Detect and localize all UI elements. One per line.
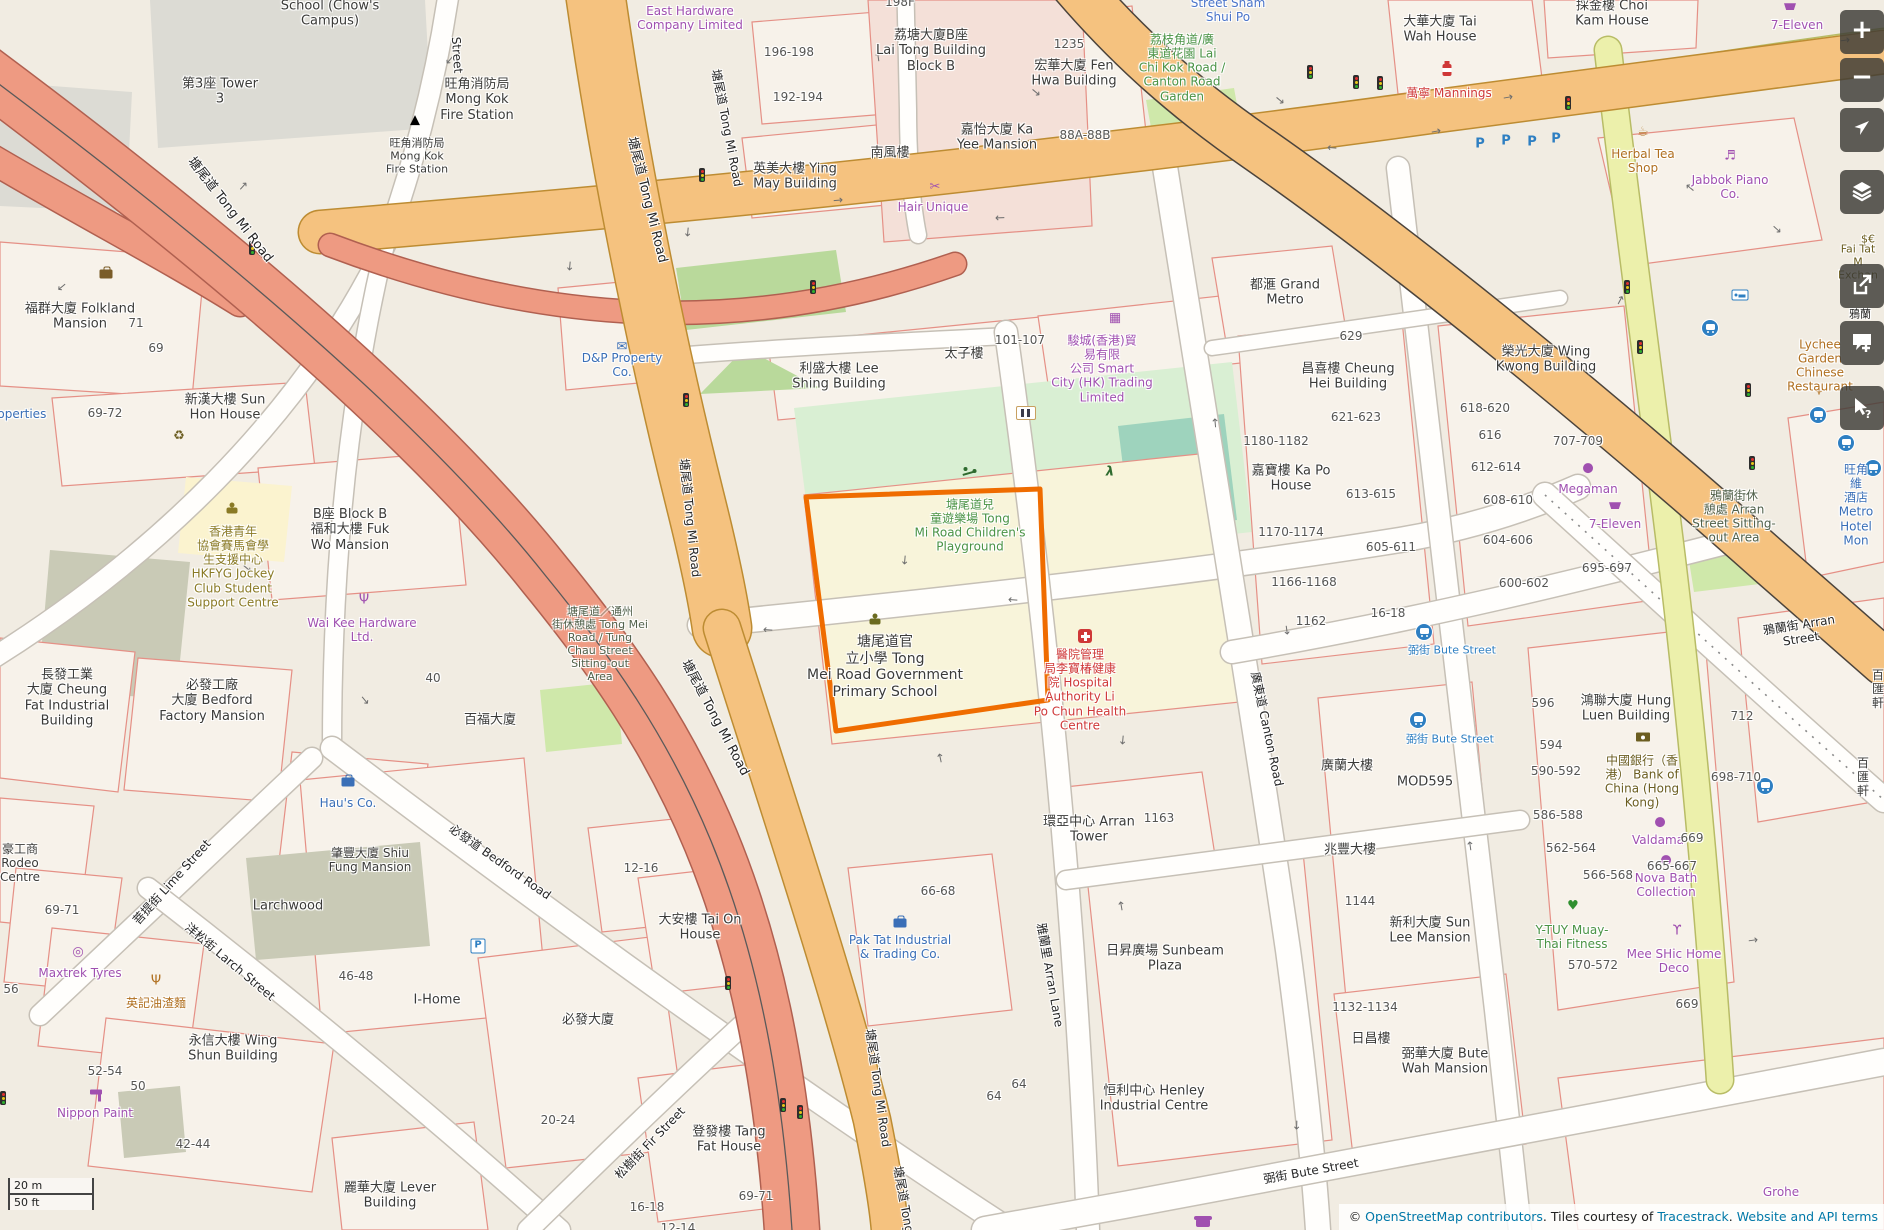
cutlery-icon: Ψ (151, 975, 161, 988)
oneway-arrow-icon: → (1747, 933, 1759, 946)
map-label: 46-48 (339, 969, 374, 983)
map-label: 新利大廈 Sun Lee Mansion (1389, 916, 1470, 947)
map-label: 669 (1676, 997, 1699, 1011)
map-label: 昌喜樓 Cheung Hei Building (1301, 362, 1394, 393)
basket-icon (1609, 501, 1621, 509)
svg-text:?: ? (1865, 408, 1871, 420)
map-label: 旺角維 酒店 Metro Hotel Mon (1839, 463, 1873, 548)
sofa-icon (1196, 1219, 1210, 1227)
map-label: 塘尾道兒 童遊樂場 Tong Mi Road Children's Playgr… (915, 498, 1026, 555)
map-label: 52-54 (88, 1064, 123, 1078)
map-label: B座 Block B 福和大樓 Fuk Wo Mansion (311, 507, 390, 553)
map-label: 621-623 (1331, 410, 1381, 424)
tl-icon (1377, 76, 1383, 90)
osm-contributors-link[interactable]: OpenStreetMap contributors (1365, 1209, 1543, 1224)
map-label: 64 (986, 1089, 1001, 1103)
tl-icon (0, 1091, 6, 1105)
street-label: 鴉蘭 (1849, 309, 1871, 322)
map-label: 日昌樓 (1351, 1031, 1390, 1046)
map-label: 塘尾道／通州 街休憩處 Tong Mei Road / Tung Chau St… (552, 606, 648, 684)
map-label: 12-16 (624, 861, 659, 875)
map-label: Hair Unique (898, 200, 969, 214)
map-label: 616 (1479, 428, 1502, 442)
tyre-icon: ◎ (72, 946, 83, 959)
map-label: 196-198 (764, 45, 814, 59)
basket-icon (1784, 2, 1796, 10)
map-label: 恒利中心 Henley Industrial Centre (1100, 1084, 1209, 1115)
map-label: 永信大樓 Wing Shun Building (188, 1034, 278, 1065)
trumpet-icon: ♬ (1724, 150, 1736, 163)
tl-icon (1353, 75, 1359, 89)
bus-icon (1837, 434, 1855, 452)
map-label: 88A-88B (1059, 128, 1110, 142)
map-label: Megaman (1558, 482, 1617, 496)
map-label: 旺角消防局 Mong Kok Fire Station (440, 77, 514, 123)
pbike-icon: P (1527, 136, 1537, 149)
tl-icon (1745, 383, 1751, 397)
tl-icon (797, 1105, 803, 1119)
map-label: MOD595 (1397, 774, 1453, 789)
map-label: 566-568 (1583, 868, 1633, 882)
terms-link[interactable]: Website and API terms (1737, 1209, 1878, 1224)
map-label: Pak Tat Industrial & Trading Co. (849, 933, 951, 961)
map-label: 都滙 Grand Metro (1250, 278, 1320, 309)
map-label: 56 (3, 982, 18, 996)
map-label: 日昇廣場 Sunbeam Plaza (1106, 944, 1224, 975)
oneway-arrow-icon: → (1114, 900, 1128, 912)
pbike-icon: P (1551, 133, 1561, 146)
map-label: 42-44 (176, 1137, 211, 1151)
bank-icon (1636, 733, 1650, 742)
map-label: 長發工業 大廈 Cheung Fat Industrial Building (25, 667, 109, 728)
briefcase-icon (342, 778, 355, 787)
map-label: 荔塘大廈B座 Lai Tong Building Block B (876, 28, 986, 74)
map-label: 69-72 (88, 406, 123, 420)
oneway-arrow-icon: → (1463, 840, 1476, 852)
street-label: Street (449, 36, 466, 73)
oneway-arrow-icon: → (1502, 90, 1514, 104)
map-label: 1163 (1144, 811, 1175, 825)
map-label: 50 (130, 1079, 145, 1093)
map-label: 192-194 (773, 90, 823, 104)
attribution-mid2: . (1729, 1209, 1737, 1224)
map-label: 太子樓 (944, 346, 983, 361)
tl-icon (780, 1098, 786, 1112)
query-features-button[interactable]: ? (1840, 386, 1884, 430)
oneway-arrow-icon: → (1117, 734, 1130, 745)
map-label: 中國銀行（香 港） Bank of China (Hong Kong) (1605, 754, 1679, 811)
add-note-button[interactable] (1840, 321, 1884, 365)
map-label: 1235 (1054, 37, 1085, 51)
map-label: 712 (1731, 709, 1754, 723)
map-label: 69-71 (739, 1189, 774, 1203)
oneway-arrow-icon: → (1291, 1120, 1303, 1130)
map-label: 兆豐大樓 (1324, 842, 1376, 857)
map-label: 香港青年 協會賽馬會學 生支援中心 HKFYG Jockey Club Stud… (187, 525, 278, 610)
layers-button[interactable] (1840, 170, 1884, 214)
map-label: 20-24 (541, 1113, 576, 1127)
oneway-arrow-icon: → (1008, 594, 1019, 607)
attribution-bar: © OpenStreetMap contributors. Tiles cour… (1339, 1204, 1884, 1230)
map-label: Valdama (1632, 833, 1684, 847)
briefcase-icon (894, 919, 907, 928)
map-label: 採金樓 Choi Kam House (1575, 0, 1649, 29)
map-label: 新漢大樓 Sun Hon House (185, 393, 266, 424)
runner-icon: λ (1106, 466, 1114, 479)
tl-icon (1749, 456, 1755, 470)
map-label: 鴻聯大廈 Hung Luen Building (1581, 694, 1672, 725)
map-label: 604-606 (1483, 533, 1533, 547)
oneway-arrow-icon: → (763, 624, 774, 637)
map-label: D&P Property Co. (582, 351, 662, 379)
reader-icon (873, 614, 878, 619)
map-label: 嘉怡大廈 Ka Yee Mansion (957, 123, 1037, 154)
dot-icon: ● (1654, 816, 1665, 829)
map-label: 608-610 (1483, 493, 1533, 507)
oneway-arrow-icon: → (995, 212, 1005, 224)
map-label: Herbal Tea Shop (1611, 147, 1675, 175)
map-label: 萬寧 Mannings (1406, 86, 1492, 100)
parking-icon: P (471, 939, 486, 954)
map-label: 必發工廠 大廈 Bedford Factory Mansion (159, 678, 265, 724)
map-label: 鴉蘭街休 憩處 Arran Street Sitting- out Area (1692, 489, 1776, 546)
map-label: 64 (1011, 1077, 1026, 1091)
map-label: 麗華大廈 Lever Building (344, 1181, 436, 1212)
map-label: 669 (1681, 831, 1704, 845)
tl-icon (683, 393, 689, 407)
oneway-arrow-icon: → (1326, 142, 1337, 155)
oneway-arrow-icon: → (1280, 624, 1293, 636)
map-label: 南風樓 (870, 145, 909, 160)
oneway-arrow-icon: → (832, 194, 843, 207)
zoom-out-button[interactable]: − (1840, 58, 1884, 102)
map-label: 40 (425, 671, 440, 685)
cutlery-icon: Ψ (359, 594, 369, 607)
map-label: 英記油渣麵 (126, 996, 186, 1010)
map-label: 1166-1168 (1271, 575, 1336, 589)
map-label: Hau's Co. (320, 796, 377, 810)
map-label: 大華大廈 Tai Wah House (1403, 15, 1477, 46)
roller-icon (90, 1090, 102, 1095)
tl-icon (810, 280, 816, 294)
reader-icon (230, 503, 235, 508)
map-label: 16-18 (1371, 606, 1406, 620)
map-label: $€ (1861, 234, 1875, 247)
map-label: 695-697 (1582, 561, 1632, 575)
map-label: 7-Eleven (1589, 517, 1641, 531)
train-icon: ▦ (1109, 312, 1121, 325)
oneway-arrow-icon: → (682, 226, 695, 237)
street-label: Street Sham Shui Po (1191, 0, 1266, 24)
map-label: 101-107 (995, 333, 1045, 347)
map-label: 1162 (1296, 614, 1327, 628)
map-label: 605-611 (1366, 540, 1416, 554)
map-label: 665-667 (1647, 859, 1697, 873)
map-label: 1132-1134 (1332, 1000, 1397, 1014)
fitness-icon: ♥ (1567, 900, 1579, 913)
bus-icon (1415, 623, 1433, 641)
map-label: 大安樓 Tai On House (658, 913, 741, 944)
map-label: 嘉寶樓 Ka Po House (1252, 464, 1331, 495)
map-label: Larchwood (253, 898, 323, 913)
map-label: 698-710 (1711, 770, 1761, 784)
map-label: 環亞中心 Arran Tower (1043, 815, 1135, 846)
map-label: 弼華大廈 Bute Wah Mansion (1402, 1047, 1488, 1078)
oneway-arrow-icon: → (899, 554, 912, 565)
map-label: Mee SHic Home Deco (1627, 947, 1722, 975)
pbike-icon: P (1475, 138, 1485, 151)
map-label: 登發樓 Tang Fat House (692, 1125, 765, 1156)
map-canvas[interactable]: →→→→→→→→→→→→→→→→→→→→→→→→→→→→→→ PPPPP✉▲♻Ψ… (0, 0, 1884, 1230)
road-network (0, 0, 1884, 1230)
briefcase-icon (100, 270, 113, 279)
zoom-in-button[interactable]: + (1840, 10, 1884, 54)
map-label: 旺角消防局 Mong Kok Fire Station (386, 138, 448, 177)
map-label: 利盛大樓 Lee Shing Building (792, 362, 885, 393)
oneway-arrow-icon: → (1209, 417, 1222, 428)
map-label: 塘尾道官 立小學 Tong Mei Road Government Primar… (807, 634, 963, 700)
map-label: 69 (148, 341, 163, 355)
bus-icon (1809, 406, 1827, 424)
seesaw-icon (963, 468, 978, 478)
bus-icon (1409, 711, 1427, 729)
map-label: 198F (885, 0, 915, 9)
map-label: 宏華大廈 Fen Hwa Building (1031, 59, 1116, 90)
map-label: 618-620 (1460, 401, 1510, 415)
map-label: 百匯軒 (1853, 756, 1874, 798)
map-label: 586-588 (1533, 808, 1583, 822)
map-label: 1144 (1345, 894, 1376, 908)
oneway-arrow-icon: → (1430, 124, 1442, 138)
map-label: Y-TUY Muay- Thai Fitness (1536, 923, 1609, 951)
cup-icon: ☕ (1637, 126, 1649, 139)
layers-icon (1851, 179, 1873, 209)
map-label: I-Home (414, 992, 461, 1007)
bus-icon (1701, 319, 1719, 337)
map-label: 百福大廈 (464, 712, 516, 727)
map-label: Wai Kee Hardware Ltd. (307, 616, 416, 644)
map-label: 駿城(香港)貿 易有限 公司 Smart City (HK) Trading L… (1051, 334, 1152, 405)
tracestrack-link[interactable]: Tracestrack (1657, 1209, 1728, 1224)
map-label: East Hardware Company Limited (637, 4, 743, 32)
share-button[interactable] (1840, 264, 1884, 308)
hanger-icon: ϒ (1672, 925, 1681, 938)
map-label: 1170-1174 (1258, 525, 1323, 539)
tl-icon (1624, 280, 1630, 294)
map-label: 16-18 (630, 1200, 665, 1214)
scissors-icon: ✂ (930, 181, 941, 194)
map-label: 肇豐大廈 Shiu Fung Mansion (329, 846, 412, 874)
map-label: 562-564 (1546, 841, 1596, 855)
map-label: 弼街 Bute Street (1408, 645, 1496, 658)
map-label: 570-572 (1568, 958, 1618, 972)
cross-icon (1078, 629, 1092, 643)
tl-icon (1637, 340, 1643, 354)
scale-bar: 20 m 50 ft (8, 1178, 94, 1210)
attribution-mid1: . Tiles courtesy of (1543, 1209, 1657, 1224)
locate-button[interactable] (1840, 108, 1884, 152)
tl-icon (699, 168, 705, 182)
map-label: 613-615 (1346, 487, 1396, 501)
map-label: Grohe (1763, 1185, 1799, 1199)
map-label: Properties (0, 407, 46, 421)
comment-plus-icon (1851, 330, 1873, 360)
recycle-icon: ♻ (173, 430, 185, 443)
attribution-prefix: © (1349, 1209, 1365, 1224)
map-label: 707-709 (1553, 434, 1603, 448)
pharm-icon (1443, 64, 1452, 76)
map-label: 590-592 (1531, 764, 1581, 778)
map-label: School (Chow's Campus) (281, 0, 380, 29)
scale-imperial: 50 ft (8, 1195, 94, 1210)
scale-metric: 20 m (8, 1178, 94, 1195)
locate-icon (1852, 115, 1872, 145)
map-label: 612-614 (1471, 460, 1521, 474)
map-label: 600-602 (1499, 576, 1549, 590)
map-label: 榮光大廈 Wing Kwong Building (1496, 345, 1596, 376)
flame-icon: ▲ (410, 114, 420, 127)
map-label: 荔枝角道/廣 東道花園 Lai Chi Kok Road / Canton Ro… (1139, 33, 1225, 104)
tl-icon (1565, 96, 1571, 110)
map-label: 594 (1540, 738, 1563, 752)
map-label: Jabbok Piano Co. (1692, 173, 1769, 201)
map-label: 66-68 (921, 884, 956, 898)
map-label: 廣蘭大樓 (1321, 758, 1373, 773)
map-label: Nova Bath Collection (1635, 871, 1697, 899)
tl-icon (1307, 65, 1313, 79)
map-label: 596 (1532, 696, 1555, 710)
tl-icon (725, 976, 731, 990)
pbike-icon: P (1501, 135, 1511, 148)
map-label: 629 (1340, 329, 1363, 343)
map-label: Maxtrek Tyres (38, 966, 121, 980)
map-label: 醫院管理 局李寶椿健康 院 Hospital Authority Li Po C… (1034, 648, 1126, 733)
map-label: 第3座 Tower 3 (182, 77, 258, 108)
map-label: 7-Eleven (1771, 18, 1823, 32)
bed-icon (1732, 290, 1749, 301)
map-label: 1180-1182 (1243, 434, 1308, 448)
map-label: 豪工商 Rodeo Centre (0, 842, 40, 884)
map-label: Nippon Paint (57, 1106, 133, 1120)
share-icon (1851, 273, 1873, 303)
map-label: 71 (128, 316, 143, 330)
map-label: 福群大廈 Folkland Mansion (25, 302, 135, 333)
map-label: 69-71 (45, 903, 80, 917)
map-label: 英美大樓 Ying May Building (753, 162, 837, 193)
map-label: 弼街 Bute Street (1406, 734, 1494, 747)
map-label: 12-14 (661, 1221, 696, 1230)
dot-icon: ● (1582, 462, 1593, 475)
oneway-arrow-icon: → (564, 260, 577, 271)
map-label: 必發大廈 (562, 1012, 614, 1027)
query-cursor-icon: ? (1850, 397, 1874, 427)
wc-icon (1016, 406, 1036, 420)
map-label: 百匯軒 (1872, 668, 1884, 710)
